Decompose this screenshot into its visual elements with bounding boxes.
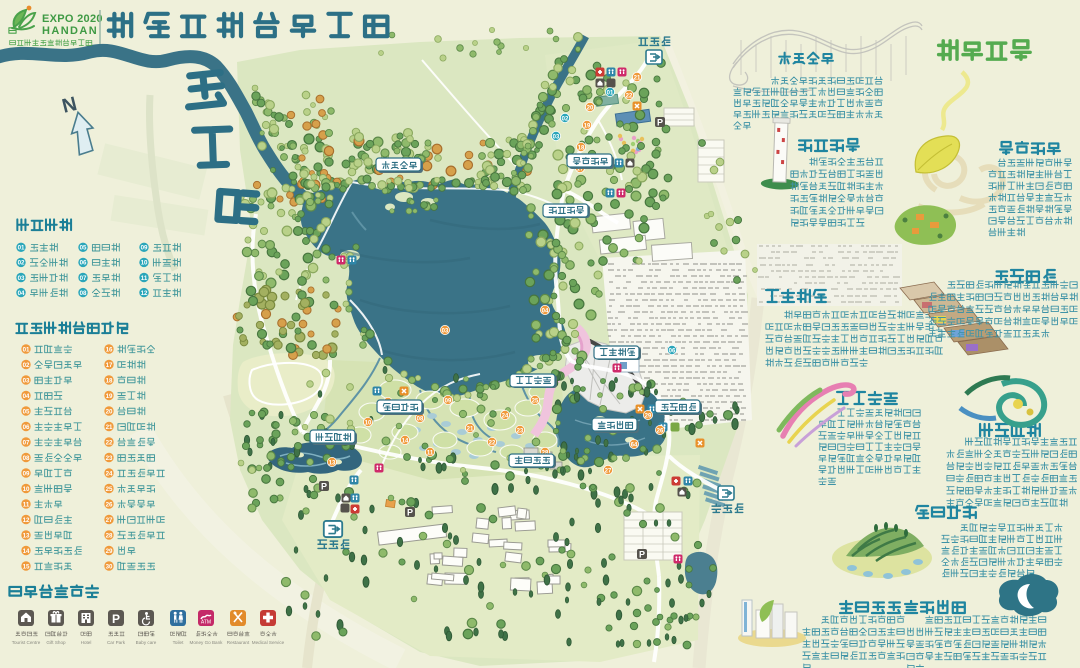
svg-text:21: 21 — [106, 424, 113, 431]
svg-text:03: 03 — [442, 328, 449, 334]
svg-text:02: 02 — [23, 362, 30, 369]
svg-text:06: 06 — [669, 348, 676, 354]
svg-text:08: 08 — [80, 290, 87, 297]
svg-text:02: 02 — [18, 260, 25, 267]
svg-text:20: 20 — [106, 408, 113, 415]
svg-text:23: 23 — [517, 428, 524, 434]
svg-text:01: 01 — [18, 245, 25, 252]
svg-text:Car Park: Car Park — [107, 640, 126, 645]
svg-text:12: 12 — [23, 517, 30, 524]
svg-text:28: 28 — [106, 532, 113, 539]
svg-text:19: 19 — [106, 393, 113, 400]
svg-text:04: 04 — [18, 290, 25, 297]
svg-text:Restaurant: Restaurant — [227, 640, 250, 645]
svg-text:P: P — [112, 612, 120, 626]
svg-text:06: 06 — [23, 424, 30, 431]
svg-text:Hotel: Hotel — [81, 640, 92, 645]
svg-text:21: 21 — [467, 426, 474, 432]
svg-text:64: 64 — [631, 442, 638, 448]
svg-text:13: 13 — [23, 532, 30, 539]
svg-text:30: 30 — [106, 563, 113, 570]
svg-text:15: 15 — [23, 563, 30, 570]
svg-text:09: 09 — [445, 398, 452, 404]
svg-text:04: 04 — [23, 393, 30, 400]
svg-text:27: 27 — [605, 468, 612, 474]
svg-text:03: 03 — [553, 134, 560, 140]
svg-text:09: 09 — [141, 245, 148, 252]
svg-text:10: 10 — [365, 420, 372, 426]
svg-text:05: 05 — [23, 408, 30, 415]
svg-text:21: 21 — [634, 75, 641, 81]
svg-text:18: 18 — [106, 377, 113, 384]
svg-text:11: 11 — [23, 501, 30, 508]
svg-text:07: 07 — [80, 275, 87, 282]
svg-text:24: 24 — [106, 470, 113, 477]
svg-text:EXPO 2020: EXPO 2020 — [42, 13, 103, 25]
svg-text:26: 26 — [657, 428, 664, 434]
svg-text:01: 01 — [607, 90, 614, 96]
svg-text:25: 25 — [106, 486, 113, 493]
svg-text:02: 02 — [562, 116, 569, 122]
svg-text:P: P — [657, 117, 663, 127]
svg-text:Medical Service: Medical Service — [252, 640, 285, 645]
svg-text:P: P — [321, 481, 327, 491]
svg-text:14: 14 — [402, 438, 409, 444]
svg-text:Toilet: Toilet — [173, 640, 184, 645]
svg-text:12: 12 — [141, 290, 148, 297]
svg-text:24: 24 — [502, 413, 509, 419]
svg-text:01: 01 — [23, 346, 30, 353]
svg-text:29: 29 — [645, 413, 652, 419]
svg-text:08: 08 — [23, 455, 30, 462]
svg-text:Tourist Centre: Tourist Centre — [12, 640, 41, 645]
svg-text:Money Go Bank: Money Go Bank — [190, 640, 224, 645]
svg-text:03: 03 — [18, 275, 25, 282]
svg-text:P: P — [639, 549, 645, 559]
svg-text:HANDAN: HANDAN — [42, 25, 98, 37]
svg-text:Gift Shop: Gift Shop — [46, 640, 66, 645]
svg-text:22: 22 — [489, 440, 496, 446]
svg-text:P: P — [407, 507, 413, 517]
svg-text:03: 03 — [23, 377, 30, 384]
svg-text:10: 10 — [141, 260, 148, 267]
svg-text:16: 16 — [106, 346, 113, 353]
svg-text:11: 11 — [427, 450, 434, 456]
svg-text:27: 27 — [106, 517, 113, 524]
svg-text:18: 18 — [578, 145, 585, 151]
svg-text:13: 13 — [329, 460, 336, 466]
svg-text:22: 22 — [106, 439, 113, 446]
svg-text:09: 09 — [23, 470, 30, 477]
svg-text:23: 23 — [106, 455, 113, 462]
svg-text:08: 08 — [417, 416, 424, 422]
svg-text:19: 19 — [584, 123, 591, 129]
svg-text:11: 11 — [141, 275, 148, 282]
svg-text:Baby care: Baby care — [136, 640, 157, 645]
svg-text:20: 20 — [587, 105, 594, 111]
svg-text:29: 29 — [106, 548, 113, 555]
svg-text:25: 25 — [532, 398, 539, 404]
svg-text:04: 04 — [542, 308, 549, 314]
svg-text:10: 10 — [23, 486, 30, 493]
svg-text:07: 07 — [23, 439, 30, 446]
svg-text:14: 14 — [23, 548, 30, 555]
svg-text:06: 06 — [80, 260, 87, 267]
svg-text:ATM: ATM — [201, 620, 211, 626]
svg-text:17: 17 — [106, 362, 113, 369]
svg-text:22: 22 — [626, 93, 633, 99]
svg-text:05: 05 — [80, 245, 87, 252]
svg-text:26: 26 — [106, 501, 113, 508]
